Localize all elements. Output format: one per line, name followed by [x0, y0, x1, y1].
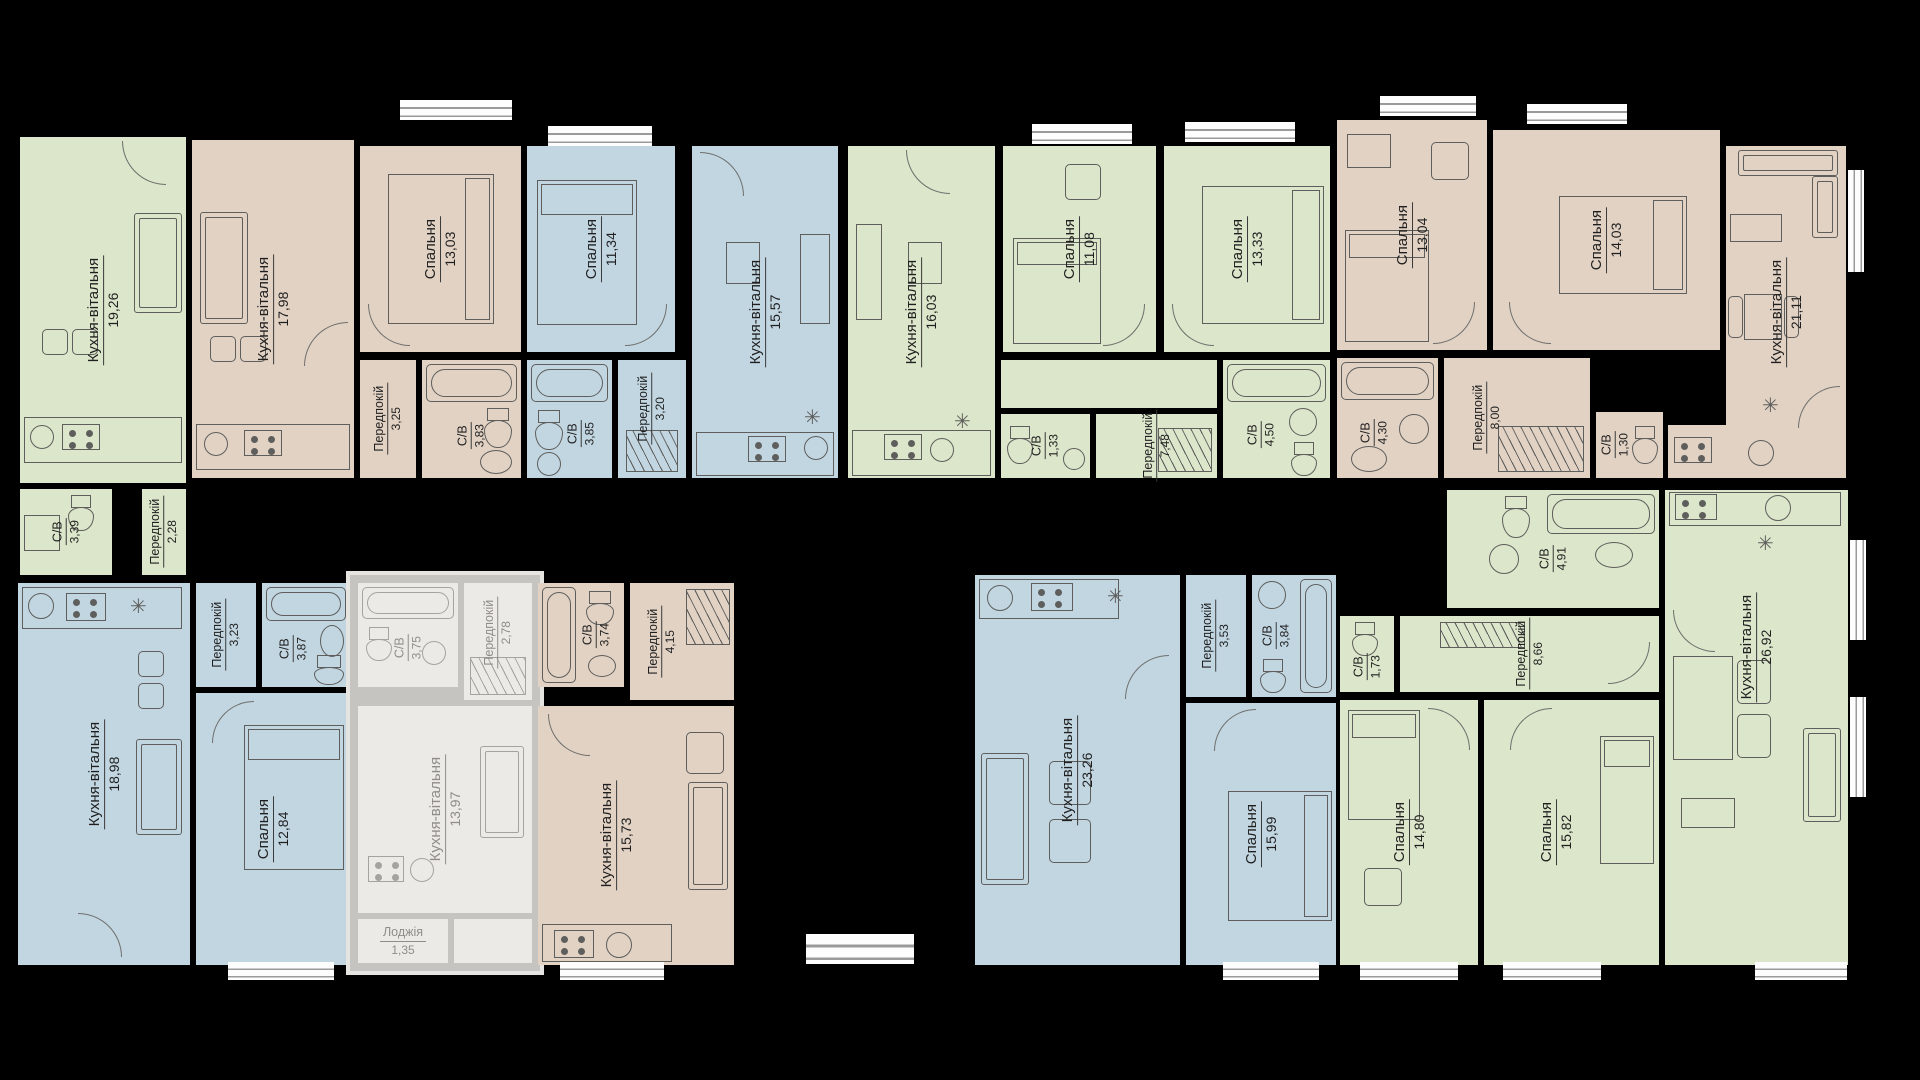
- sink-icon: [1289, 408, 1317, 436]
- sink-icon: [410, 858, 434, 882]
- washer-icon: [1399, 414, 1429, 444]
- shower-icon: [24, 515, 60, 551]
- door-arc-icon: [1125, 655, 1169, 699]
- fridge-icon: ✳: [130, 597, 147, 617]
- bed-icon: [1600, 736, 1654, 864]
- toilet-icon: [484, 408, 512, 448]
- room-label: С/В 3,85: [566, 421, 597, 448]
- window: [1848, 170, 1864, 272]
- wardrobe-icon: [470, 657, 526, 695]
- sofa-icon: [688, 782, 728, 890]
- sink-icon: [30, 425, 54, 449]
- armchair-icon: [1049, 761, 1091, 805]
- toilet-icon: [314, 655, 344, 685]
- stove-icon: [884, 434, 922, 460]
- room-label: Передпокій 4,15: [646, 606, 677, 678]
- door-arc-icon: [700, 152, 744, 196]
- bed-icon: [388, 174, 494, 324]
- room-label: С/В 4,30: [1359, 420, 1390, 447]
- sofa-icon: [1803, 728, 1841, 822]
- toilet-icon: [68, 495, 94, 531]
- stove-icon: [62, 424, 100, 450]
- sink-icon: [537, 452, 561, 476]
- room-bedroom[interactable]: Спальня 13,33: [1164, 146, 1330, 352]
- window: [228, 962, 334, 980]
- sofa-icon: [1812, 176, 1838, 238]
- cabinet-icon: [800, 234, 830, 324]
- toilet-icon: [1502, 496, 1530, 538]
- room-bedroom[interactable]: Спальня 12,84: [196, 693, 350, 965]
- tv-icon: [1681, 798, 1735, 828]
- sink-icon: [422, 641, 446, 665]
- bed-icon: [537, 180, 637, 325]
- wardrobe-icon: [1158, 428, 1212, 472]
- stove-icon: [554, 930, 594, 958]
- bathtub-icon: [1300, 579, 1332, 693]
- room-kitchen-living[interactable]: [454, 919, 532, 963]
- fridge-icon: ✳: [954, 412, 971, 432]
- toilet-icon: [1632, 426, 1658, 464]
- door-arc-icon: [1798, 386, 1840, 428]
- tv-icon: [726, 242, 760, 284]
- sofa-icon: [134, 213, 182, 313]
- bed-icon: [1013, 238, 1101, 344]
- apartment-7: С/В 3,75 Передпокій 2,78 Кухня-вітальня …: [350, 575, 540, 971]
- washer-icon: [1489, 544, 1519, 574]
- floor-plan: Кухня-вітальня 19,26 С/В 3,39 Передпокій…: [0, 0, 1920, 1080]
- chair-icon: [1737, 660, 1771, 704]
- stove-icon: [1031, 583, 1073, 611]
- room-bathroom[interactable]: С/В 4,30: [1337, 358, 1438, 478]
- room-bedroom[interactable]: Спальня 14,80: [1340, 700, 1478, 965]
- fridge-icon: ✳: [1107, 587, 1124, 607]
- chair-icon: [42, 329, 68, 355]
- door-arc-icon: [1428, 708, 1470, 750]
- tv-icon: [1730, 214, 1782, 242]
- window: [1223, 962, 1319, 980]
- room-hallway[interactable]: Передпокій 3,53: [1186, 575, 1246, 697]
- room-bedroom[interactable]: Спальня 11,08: [1003, 146, 1156, 352]
- wardrobe-icon: [626, 430, 678, 472]
- room-kitchen-living[interactable]: Кухня-вітальня 13,97: [358, 706, 532, 913]
- chair-icon: [1737, 714, 1771, 758]
- sink-icon: [320, 625, 344, 657]
- door-arc-icon: [906, 150, 950, 194]
- room-bathroom[interactable]: С/В 3,74: [538, 583, 624, 687]
- bathtub-icon: [426, 364, 517, 402]
- room-bathroom[interactable]: С/В 3,75: [358, 583, 458, 687]
- sofa-icon: [480, 746, 524, 838]
- door-arc-icon: [1433, 302, 1475, 344]
- sink-icon: [1765, 495, 1791, 521]
- room-loggia[interactable]: Лоджія 1,35: [358, 919, 448, 963]
- desk-chair-icon: [1431, 142, 1469, 180]
- room-label: Кухня-вітальня 13,97: [427, 754, 463, 864]
- fridge-icon: ✳: [804, 408, 821, 428]
- toilet-icon: [366, 627, 392, 661]
- room-label: С/В 3,83: [456, 423, 487, 450]
- room-label: Передпокій 3,25: [372, 383, 403, 455]
- room-hallway[interactable]: Передпокій 4,15: [630, 583, 734, 700]
- window: [1527, 104, 1627, 124]
- sink-icon: [28, 593, 54, 619]
- armchair-icon: [1049, 819, 1091, 863]
- washer-icon: [1258, 581, 1286, 609]
- chair-icon: [138, 683, 164, 709]
- wardrobe-icon: [686, 589, 730, 645]
- toilet-icon: [1352, 622, 1378, 656]
- dining-table-icon: [1673, 656, 1733, 760]
- window: [1850, 697, 1866, 797]
- room-bathroom[interactable]: С/В 3,85: [527, 360, 612, 478]
- chair-icon: [138, 651, 164, 677]
- window: [1755, 962, 1847, 980]
- bathtub-icon: [542, 587, 576, 683]
- room-label: С/В 4,50: [1246, 422, 1277, 449]
- cabinet-icon: [856, 224, 882, 320]
- sofa-icon: [1738, 150, 1838, 176]
- room-hallway[interactable]: Передпокій 8,66: [1400, 616, 1659, 692]
- sink-icon: [987, 585, 1013, 611]
- room-hallway[interactable]: Передпокій 2,28: [142, 489, 186, 575]
- door-arc-icon: [1673, 610, 1715, 652]
- chair-icon: [72, 329, 98, 355]
- room-kitchen-living[interactable]: Кухня-вітальня 16,03 ✳: [848, 146, 995, 478]
- room-label: Кухня-вітальня 18,98: [86, 719, 122, 829]
- stove-icon: [748, 436, 786, 462]
- sink-icon: [804, 436, 828, 460]
- sink-icon: [588, 655, 616, 677]
- sink-icon: [1595, 542, 1633, 568]
- stairwell-window: [806, 934, 914, 964]
- room-label: Кухня-вітальня 15,73: [598, 780, 634, 890]
- fridge-icon: ✳: [1757, 534, 1774, 554]
- sofa-icon: [136, 739, 182, 835]
- dining-table-icon: [1744, 294, 1782, 340]
- window: [1380, 96, 1476, 116]
- door-arc-icon: [1214, 709, 1256, 751]
- room-bathroom[interactable]: С/В 1,30: [1596, 412, 1663, 478]
- room-bedroom[interactable]: Спальня 13,03: [360, 146, 521, 352]
- door-arc-icon: [1608, 642, 1650, 684]
- window: [1850, 540, 1866, 640]
- room-label: Лоджія 1,35: [380, 925, 426, 956]
- bathtub-icon: [531, 364, 608, 402]
- window: [1360, 962, 1458, 980]
- room-hallway[interactable]: Передпокій 3,20: [618, 360, 686, 478]
- sink-icon: [930, 438, 954, 462]
- bathtub-icon: [266, 587, 346, 621]
- stove-icon: [66, 593, 106, 621]
- sink-icon: [1748, 440, 1774, 466]
- room-hallway[interactable]: Передпокій 7,48: [1096, 414, 1217, 478]
- room-label: С/В 3,87: [277, 636, 308, 663]
- room-label: С/В 1,33: [1030, 433, 1061, 460]
- room-bathroom[interactable]: С/В 3,87: [262, 583, 350, 687]
- sink-icon: [606, 932, 632, 958]
- room-label: С/В 1,73: [1351, 654, 1382, 681]
- room-bedroom[interactable]: Спальня 15,82: [1484, 700, 1659, 965]
- tv-icon: [908, 242, 942, 284]
- bed-icon: [1228, 791, 1332, 921]
- room-bathroom[interactable]: С/В 1,33: [1001, 414, 1090, 478]
- bed-icon: [1345, 230, 1429, 342]
- room-hallway[interactable]: Передпокій 3,25: [360, 360, 416, 478]
- room-kitchen-living[interactable]: Кухня-вітальня 19,26: [20, 137, 186, 483]
- sink-icon: [1063, 448, 1085, 470]
- toilet-icon: [1260, 659, 1286, 693]
- window: [400, 100, 512, 120]
- bathtub-icon: [1547, 494, 1655, 534]
- door-arc-icon: [1510, 708, 1552, 750]
- room-kitchen-living[interactable]: Кухня-вітальня 26,92 ✳: [1665, 490, 1848, 965]
- room-bedroom[interactable]: Спальня 14,03: [1493, 130, 1720, 350]
- room-kitchen-living[interactable]: [1668, 425, 1728, 478]
- desk-chair-icon: [1364, 868, 1402, 906]
- bathtub-icon: [362, 587, 454, 619]
- room-label: Передпокій 2,28: [148, 496, 179, 568]
- room-label: С/В 3,74: [580, 622, 611, 649]
- sink-icon: [204, 432, 228, 456]
- room-hallway[interactable]: Передпокій 8,00: [1444, 358, 1590, 478]
- room-bathroom[interactable]: С/В 1,73: [1340, 616, 1394, 692]
- door-arc-icon: [78, 913, 122, 957]
- stove-icon: [1674, 437, 1712, 463]
- window: [1032, 124, 1132, 144]
- room-label: С/В 3,75: [392, 635, 423, 662]
- room-bathroom[interactable]: С/В 3,84: [1252, 575, 1336, 697]
- room-bedroom[interactable]: Спальня 11,34: [527, 146, 675, 352]
- toilet-icon: [1291, 442, 1317, 476]
- room-kitchen-living[interactable]: Кухня-вітальня 23,26 ✳: [975, 575, 1180, 965]
- chair-icon: [1728, 296, 1743, 338]
- room-kitchen-living[interactable]: Кухня-вітальня 15,57 ✳: [692, 146, 838, 478]
- sofa-icon: [981, 753, 1029, 885]
- chair-icon: [1784, 296, 1799, 338]
- wardrobe-icon: [1440, 622, 1525, 648]
- room-hallway[interactable]: [1001, 360, 1217, 408]
- room-label: Передпокій 3,53: [1200, 600, 1231, 672]
- sink-icon: [1351, 446, 1387, 472]
- bathtub-icon: [1341, 362, 1434, 400]
- bed-icon: [1559, 196, 1687, 294]
- door-arc-icon: [304, 322, 348, 366]
- chair-icon: [210, 336, 236, 362]
- room-hallway[interactable]: Передпокій 3,23: [196, 583, 256, 687]
- toilet-icon: [1007, 426, 1033, 464]
- sink-icon: [480, 450, 512, 474]
- room-kitchen-living[interactable]: Кухня-вітальня 21,11 ✳: [1726, 146, 1846, 478]
- room-hallway[interactable]: Передпокій 2,78: [464, 583, 532, 700]
- room-bathroom[interactable]: С/В 4,91: [1447, 490, 1659, 608]
- room-bedroom[interactable]: Спальня 15,99: [1186, 703, 1336, 965]
- chair-icon: [240, 336, 266, 362]
- room-label: Передпокій 3,23: [210, 599, 241, 671]
- door-arc-icon: [548, 714, 590, 756]
- stove-icon: [244, 430, 282, 456]
- toilet-icon: [535, 410, 563, 450]
- stove-icon: [1675, 494, 1717, 520]
- sofa-icon: [200, 212, 248, 324]
- wardrobe-icon: [1498, 426, 1584, 472]
- room-label: С/В 1,30: [1600, 432, 1631, 459]
- desk-icon: [1347, 134, 1391, 168]
- door-arc-icon: [1509, 302, 1551, 344]
- room-kitchen-living[interactable]: Кухня-вітальня 18,98 ✳: [18, 583, 190, 965]
- room-label: Спальня 15,82: [1538, 799, 1574, 865]
- room-bathroom[interactable]: С/В 3,39: [20, 489, 112, 575]
- armchair-icon: [686, 732, 724, 774]
- bed-icon: [1202, 186, 1324, 324]
- door-arc-icon: [1103, 304, 1145, 346]
- bathtub-icon: [1227, 364, 1326, 402]
- room-label: С/В 4,91: [1537, 546, 1568, 573]
- window: [1503, 962, 1601, 980]
- bed-icon: [244, 725, 344, 870]
- room-kitchen-living[interactable]: Кухня-вітальня 15,73: [538, 706, 734, 965]
- room-kitchen-living[interactable]: Кухня-вітальня 17,98: [192, 140, 354, 478]
- toilet-icon: [586, 591, 614, 625]
- window: [1185, 122, 1295, 142]
- room-bathroom[interactable]: С/В 3,83: [422, 360, 521, 478]
- room-label: С/В 3,84: [1260, 623, 1291, 650]
- desk-chair-icon: [1065, 164, 1101, 200]
- stove-icon: [368, 856, 404, 882]
- door-arc-icon: [122, 141, 166, 185]
- room-bathroom[interactable]: С/В 4,50: [1223, 360, 1330, 478]
- room-bedroom[interactable]: Спальня 13,04: [1337, 120, 1487, 350]
- bed-icon: [1348, 710, 1420, 820]
- window: [560, 962, 664, 980]
- fridge-icon: ✳: [1762, 396, 1779, 416]
- window: [548, 126, 652, 146]
